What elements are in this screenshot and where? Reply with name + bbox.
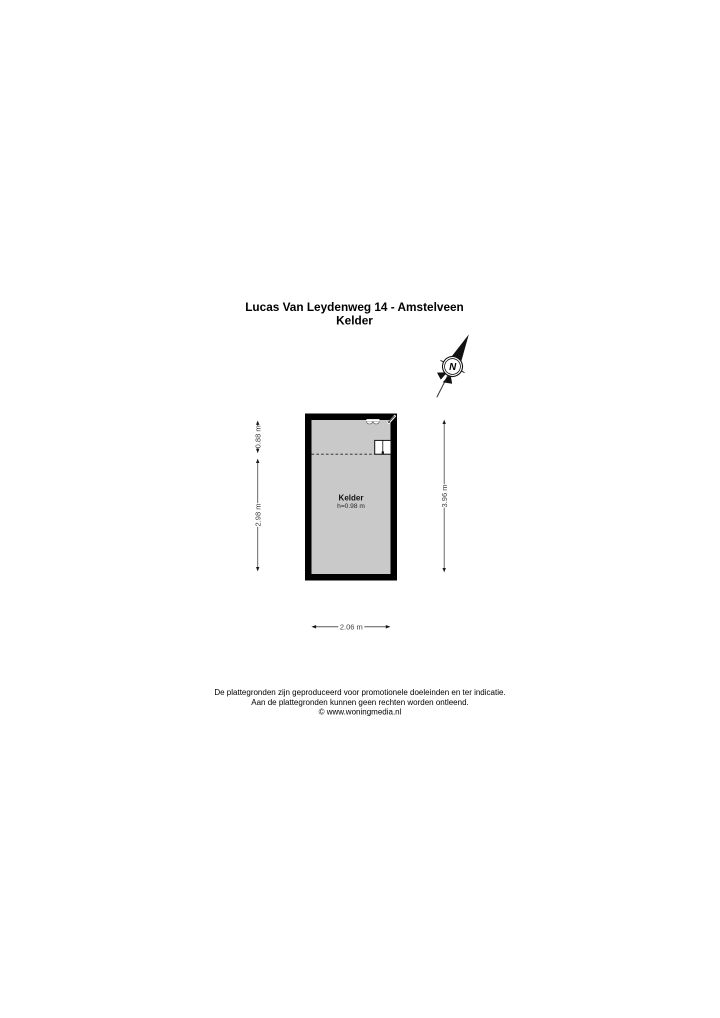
svg-text:Aan de plattegronden kunnen ge: Aan de plattegronden kunnen geen rechten…: [251, 698, 469, 707]
svg-text:3.96 m: 3.96 m: [440, 485, 449, 508]
svg-text:0.88 m: 0.88 m: [253, 425, 262, 448]
svg-text:Kelder: Kelder: [336, 314, 373, 328]
svg-text:Lucas Van Leydenweg 14 - Amste: Lucas Van Leydenweg 14 - Amstelveen: [245, 300, 464, 314]
svg-text:Kelder: Kelder: [339, 494, 364, 503]
svg-text:© www.woningmedia.nl: © www.woningmedia.nl: [319, 707, 402, 716]
svg-text:N: N: [449, 362, 457, 373]
svg-text:h=0.98 m: h=0.98 m: [337, 503, 365, 510]
svg-text:2.98 m: 2.98 m: [253, 504, 262, 527]
svg-text:De plattegronden zijn geproduc: De plattegronden zijn geproduceerd voor …: [214, 688, 505, 697]
svg-text:2.06 m: 2.06 m: [340, 623, 363, 632]
